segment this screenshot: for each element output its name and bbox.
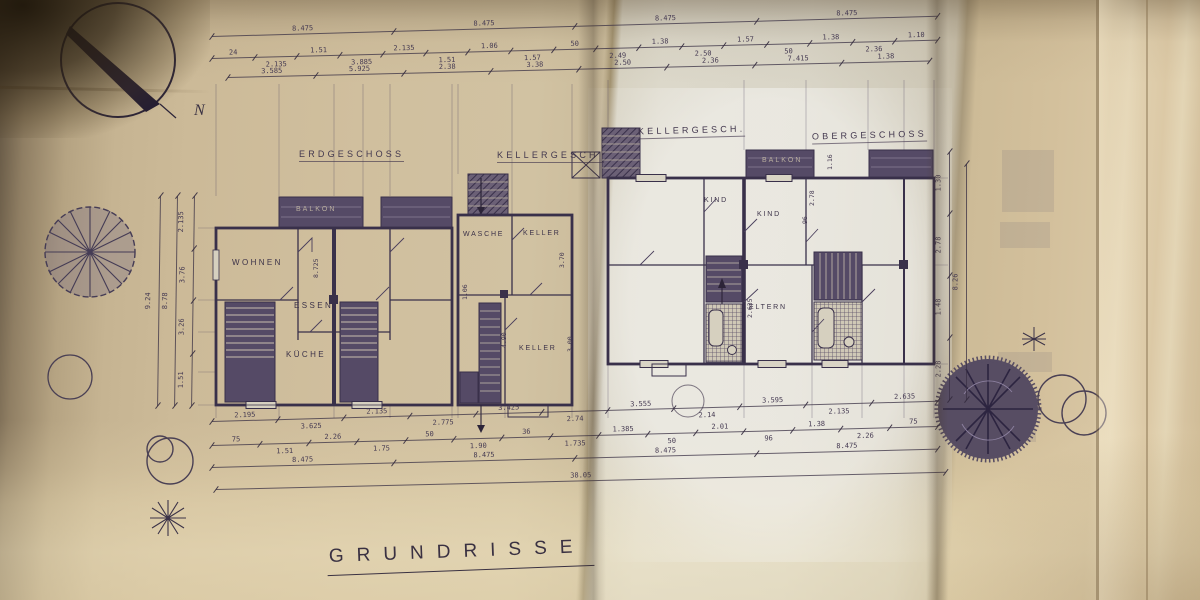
dim-value: 1.38: [822, 33, 839, 41]
inline-dim-balkon: 1.16: [826, 154, 834, 170]
dim-chain-right-detail: 1.302.781.482.28: [949, 152, 950, 400]
dim-value: 1.38: [652, 37, 669, 45]
dim-value: 75: [909, 418, 918, 426]
room-label-balkon-right: BALKON: [762, 157, 802, 164]
dim-chain-bottom-rooms: 2.1953.6252.1352.7753.4252.743.5552.143.…: [212, 401, 938, 422]
dim-value: 9.24: [144, 292, 152, 309]
dim-value: 36: [522, 428, 531, 436]
dim-value: 8.475: [292, 455, 313, 464]
dim-chain-top-detail: 242.1351.513.8852.1351.511.061.57502.491…: [212, 40, 938, 59]
dim-value: 8.475: [655, 14, 676, 23]
dim-value: 8.475: [655, 446, 676, 455]
dim-value: 1.90: [470, 441, 487, 449]
plan-title-erdgeschoss: ERDGESCHOSS: [299, 149, 404, 162]
dim-value: 2.135: [393, 44, 414, 53]
dim-value: 1.38: [877, 52, 894, 60]
dim-value: 2.135: [366, 407, 387, 416]
dim-value: 1.38: [808, 420, 825, 428]
dim-value: 8.78: [161, 292, 169, 309]
room-label-keller-bottom: KELLER: [519, 345, 557, 352]
dim-value: 1.51: [310, 46, 327, 54]
dim-value: 1.385: [612, 425, 633, 434]
blueprint-photo: 8.4758.4758.4758.475242.1351.513.8852.13…: [0, 0, 1200, 600]
dim-value: 1.51: [177, 371, 185, 388]
inline-dim-essen: 8.725: [312, 258, 320, 278]
dim-value: 8.475: [836, 442, 857, 451]
dim-value: 3.585: [261, 67, 282, 75]
dim-value: 1.75: [373, 444, 390, 452]
dim-value: 2.135: [177, 211, 185, 232]
inline-dim-keller-s: 3.00: [566, 336, 574, 352]
dim-value: 2.635: [894, 392, 915, 401]
dim-value: 50: [425, 430, 434, 438]
dim-value: 1.51: [276, 446, 293, 454]
inline-dim-stair: 1.06: [461, 284, 469, 300]
inline-dim-kind-w: 96: [801, 216, 809, 224]
dim-value: 3.38: [526, 61, 543, 69]
dim-value: 2.26: [857, 431, 874, 439]
inline-dim-keller-d: 4.90: [500, 332, 508, 348]
dim-value: 2.38: [439, 63, 456, 71]
dim-value: 1.10: [908, 31, 925, 39]
dim-value: 2.135: [828, 407, 849, 416]
dim-value: 3.76: [178, 266, 186, 283]
room-label-wohnen: WOHNEN: [232, 258, 283, 267]
corner-shadow: [0, 0, 210, 138]
room-label-keller-top: KELLER: [523, 230, 561, 237]
dim-value: 2.14: [698, 410, 715, 418]
dim-value: 2.01: [711, 422, 728, 430]
dim-value: 8.475: [473, 451, 494, 460]
dim-value: 1.06: [481, 42, 498, 50]
dim-value: 96: [764, 434, 773, 442]
dim-value: 5.925: [349, 65, 370, 73]
room-label-essen: ESSEN: [294, 301, 333, 310]
dim-value: 24: [229, 48, 238, 56]
dim-value: 2.775: [432, 418, 453, 427]
dim-chain-bottom-sub: 8.4758.4758.4758.475: [212, 449, 938, 468]
inline-dim-kind-d: 2.78: [808, 190, 816, 206]
dim-chain-left-detail: 2.1353.763.261.51: [191, 196, 195, 406]
dim-value: 3.595: [762, 396, 783, 405]
dim-value: 2.36: [702, 56, 719, 64]
dim-value: 8.26: [952, 274, 960, 291]
room-label-waesche: WASCHE: [463, 231, 504, 238]
inline-dim-eltern: 2.635: [746, 298, 754, 318]
dim-value: 3.425: [498, 403, 519, 412]
dim-value: 2.26: [324, 433, 341, 441]
dim-value: 1.57: [737, 35, 754, 43]
sheet-edge-shadow: [578, 0, 606, 600]
dim-chain-right-sub: 8.26: [966, 164, 967, 400]
room-label-balkon-left: BALKON: [296, 206, 336, 213]
dim-value: 8.475: [473, 19, 494, 28]
room-label-kueche: KÜCHE: [286, 350, 326, 359]
dim-value: 8.475: [836, 9, 857, 18]
dim-value: 3.625: [301, 421, 322, 430]
dim-value: 3.26: [178, 319, 186, 336]
dim-value: 3.555: [630, 400, 651, 409]
inline-dim-keller-w: 3.70: [558, 252, 566, 268]
corner-shade: [920, 430, 1200, 600]
room-label-eltern: ELTERN: [749, 304, 787, 311]
room-label-kind-2: KIND: [757, 211, 781, 218]
room-label-kind-1: KIND: [704, 197, 728, 204]
dim-value: 7.415: [787, 54, 808, 62]
dim-value: 2.195: [234, 411, 255, 420]
dim-value: 75: [232, 435, 241, 443]
dim-value: 50: [668, 436, 677, 444]
dim-value: 8.475: [292, 24, 313, 33]
dim-value: 2.50: [614, 59, 631, 67]
